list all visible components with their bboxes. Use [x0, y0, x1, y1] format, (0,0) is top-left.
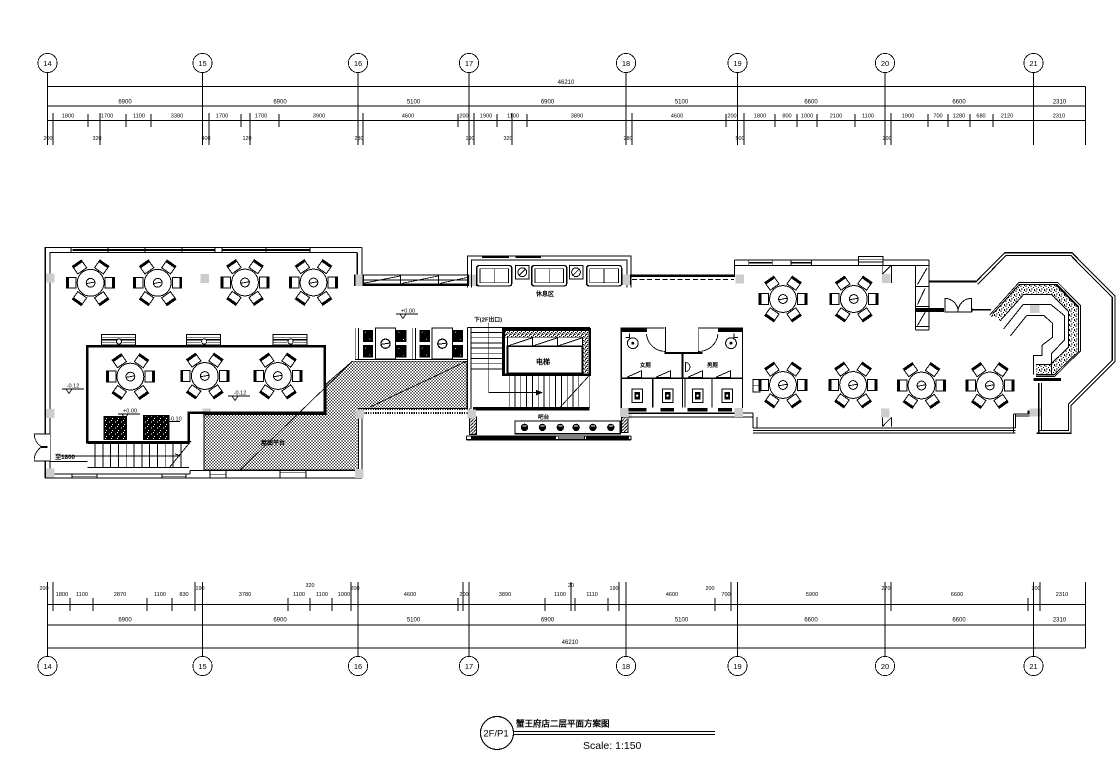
svg-text:320: 320 — [504, 136, 513, 142]
svg-text:46210: 46210 — [562, 640, 579, 646]
svg-text:-0.12: -0.12 — [67, 384, 80, 390]
svg-text:120: 120 — [243, 136, 252, 142]
svg-text:5100: 5100 — [675, 100, 689, 106]
svg-text:+0.00: +0.00 — [123, 409, 137, 415]
svg-text:1100: 1100 — [316, 592, 328, 598]
svg-text:46210: 46210 — [558, 80, 575, 86]
svg-text:21: 21 — [1029, 662, 1037, 671]
svg-text:200: 200 — [459, 114, 468, 120]
svg-text:2120: 2120 — [1001, 114, 1013, 120]
svg-text:6900: 6900 — [273, 618, 287, 624]
svg-text:1000: 1000 — [801, 114, 813, 120]
svg-text:18: 18 — [622, 59, 630, 68]
svg-text:6600: 6600 — [804, 618, 818, 624]
svg-text:1800: 1800 — [754, 114, 766, 120]
svg-text:17: 17 — [465, 59, 473, 68]
svg-text:15: 15 — [198, 662, 206, 671]
svg-text:2310: 2310 — [1053, 618, 1067, 624]
svg-text:6900: 6900 — [118, 100, 132, 106]
svg-text:6900: 6900 — [541, 100, 555, 106]
svg-text:1700: 1700 — [255, 114, 267, 120]
svg-text:21: 21 — [1029, 59, 1037, 68]
svg-text:18: 18 — [622, 662, 630, 671]
svg-text:6600: 6600 — [952, 100, 966, 106]
svg-text:1100: 1100 — [507, 114, 519, 120]
svg-text:19: 19 — [733, 662, 741, 671]
svg-text:2100: 2100 — [830, 114, 842, 120]
svg-text:6600: 6600 — [952, 618, 966, 624]
svg-text:20: 20 — [568, 583, 574, 589]
svg-text:电梯: 电梯 — [536, 357, 550, 366]
svg-text:3380: 3380 — [171, 114, 183, 120]
svg-text:4600: 4600 — [666, 592, 678, 598]
svg-text:270: 270 — [882, 586, 891, 592]
svg-text:5100: 5100 — [407, 618, 421, 624]
svg-text:1110: 1110 — [586, 592, 598, 598]
svg-text:2870: 2870 — [114, 592, 126, 598]
svg-text:200: 200 — [1032, 586, 1041, 592]
svg-text:1100: 1100 — [554, 592, 566, 598]
svg-text:320: 320 — [93, 136, 102, 142]
svg-text:19: 19 — [733, 59, 741, 68]
svg-text:-0.12: -0.12 — [234, 391, 247, 397]
svg-text:2310: 2310 — [1053, 114, 1065, 120]
svg-text:至1800: 至1800 — [55, 453, 76, 461]
svg-text:4600: 4600 — [671, 114, 683, 120]
svg-text:2310: 2310 — [1053, 100, 1067, 106]
svg-text:5100: 5100 — [675, 618, 689, 624]
svg-text:1800: 1800 — [56, 592, 68, 598]
svg-text:Scale: 1:150: Scale: 1:150 — [583, 740, 642, 752]
svg-text:500: 500 — [736, 136, 745, 142]
svg-text:200: 200 — [351, 586, 360, 592]
svg-text:15: 15 — [198, 59, 206, 68]
svg-text:2310: 2310 — [1056, 592, 1068, 598]
svg-text:1100: 1100 — [293, 592, 305, 598]
svg-text:200: 200 — [40, 586, 49, 592]
svg-text:700: 700 — [933, 114, 942, 120]
svg-text:1100: 1100 — [154, 592, 166, 598]
svg-text:6900: 6900 — [273, 100, 287, 106]
svg-text:20: 20 — [881, 662, 889, 671]
svg-text:1700: 1700 — [216, 114, 228, 120]
svg-text:200: 200 — [727, 114, 736, 120]
svg-text:3890: 3890 — [571, 114, 583, 120]
svg-text:6900: 6900 — [118, 618, 132, 624]
svg-text:17: 17 — [465, 662, 473, 671]
svg-text:680: 680 — [976, 114, 985, 120]
svg-text:蟹王府店二层平面方案图: 蟹王府店二层平面方案图 — [515, 719, 610, 729]
svg-text:280: 280 — [355, 136, 364, 142]
svg-text:20: 20 — [881, 59, 889, 68]
svg-text:6600: 6600 — [951, 592, 963, 598]
svg-text:3780: 3780 — [239, 592, 251, 598]
svg-text:190: 190 — [466, 136, 475, 142]
svg-text:5900: 5900 — [806, 592, 818, 598]
svg-text:女厕: 女厕 — [640, 361, 651, 369]
svg-text:1280: 1280 — [953, 114, 965, 120]
svg-text:1700: 1700 — [101, 114, 113, 120]
svg-text:吧台: 吧台 — [538, 413, 550, 421]
svg-text:1000: 1000 — [338, 592, 350, 598]
svg-text:190: 190 — [610, 586, 619, 592]
svg-text:16: 16 — [354, 59, 362, 68]
svg-text:190: 190 — [196, 586, 205, 592]
svg-text:1100: 1100 — [133, 114, 145, 120]
svg-text:4600: 4600 — [404, 592, 416, 598]
svg-text:200: 200 — [883, 136, 892, 142]
svg-text:14: 14 — [43, 59, 51, 68]
svg-text:280: 280 — [624, 136, 633, 142]
svg-text:400: 400 — [202, 136, 211, 142]
svg-text:1800: 1800 — [62, 114, 74, 120]
svg-text:200: 200 — [459, 592, 468, 598]
svg-text:320: 320 — [306, 583, 315, 589]
svg-text:830: 830 — [179, 592, 188, 598]
svg-text:1100: 1100 — [76, 592, 88, 598]
svg-text:3900: 3900 — [313, 114, 325, 120]
svg-text:200: 200 — [44, 136, 53, 142]
svg-text:800: 800 — [782, 114, 791, 120]
svg-text:休息区: 休息区 — [535, 290, 554, 298]
svg-text:1100: 1100 — [862, 114, 874, 120]
svg-text:700: 700 — [721, 592, 730, 598]
svg-text:2F/P1: 2F/P1 — [483, 729, 508, 740]
svg-text:1900: 1900 — [902, 114, 914, 120]
svg-text:5100: 5100 — [407, 100, 421, 106]
svg-text:200: 200 — [706, 586, 715, 592]
svg-text:+0.00: +0.00 — [401, 309, 415, 315]
svg-text:4600: 4600 — [402, 114, 414, 120]
svg-text:男厕: 男厕 — [707, 361, 718, 369]
svg-text:3890: 3890 — [499, 592, 511, 598]
svg-text:6600: 6600 — [804, 100, 818, 106]
svg-text:6900: 6900 — [541, 618, 555, 624]
svg-text:14: 14 — [43, 662, 51, 671]
svg-text:下(2F出口): 下(2F出口) — [474, 316, 502, 324]
svg-text:16: 16 — [354, 662, 362, 671]
svg-text:1900: 1900 — [480, 114, 492, 120]
